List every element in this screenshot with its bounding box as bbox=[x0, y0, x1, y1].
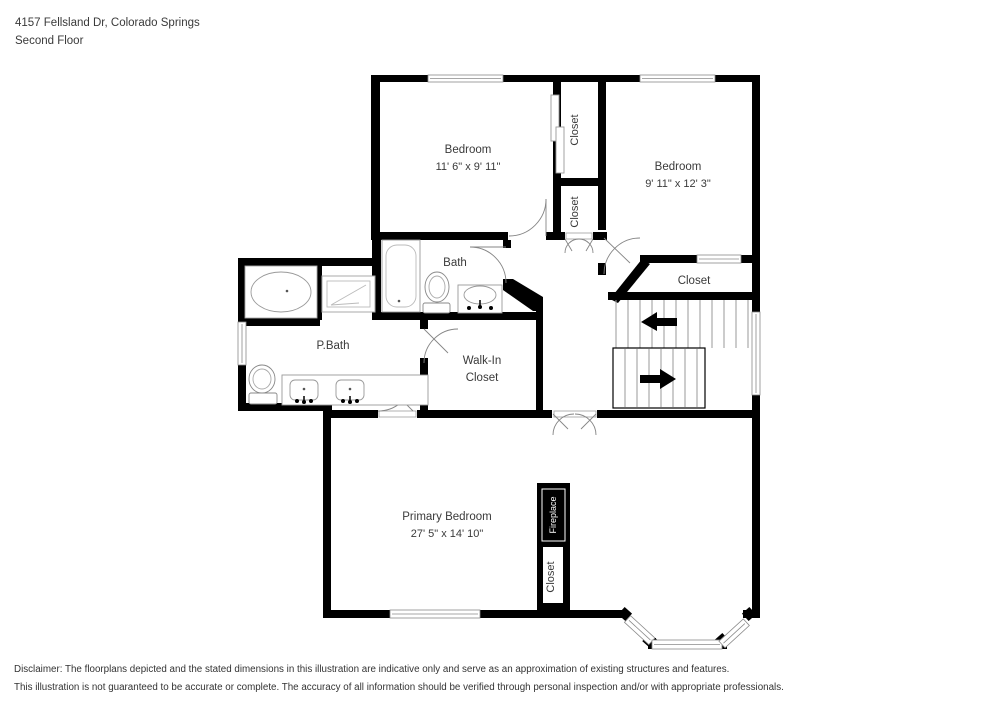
shower-icon bbox=[322, 276, 375, 312]
stair-arrow-up-icon bbox=[641, 312, 677, 331]
bedroom2-label: Bedroom bbox=[655, 161, 702, 173]
double-vanity-icon bbox=[282, 375, 428, 405]
primary-closet-label: Closet bbox=[545, 561, 557, 592]
bath-label: Bath bbox=[443, 257, 467, 269]
floor-label: Second Floor bbox=[15, 32, 200, 50]
bedroom2-dimensions: 9' 11" x 12' 3" bbox=[645, 178, 711, 190]
fireplace: Fireplace bbox=[537, 483, 570, 547]
door-sill bbox=[379, 411, 416, 417]
walk-in-closet-label-line1: Walk-In bbox=[463, 355, 502, 367]
bathtub-icon bbox=[382, 240, 420, 312]
sliding-closet-doors-icon bbox=[551, 95, 564, 173]
oval-tub-icon bbox=[245, 266, 317, 318]
window-hall-closet-icon bbox=[697, 255, 741, 263]
window-bedroom1-top-icon bbox=[428, 75, 503, 82]
bedroom1-dimensions: 11' 6" x 9' 11" bbox=[436, 161, 501, 173]
primary-bedroom-dimensions: 27' 5" x 14' 10" bbox=[411, 528, 484, 540]
address-text: 4157 Fellsland Dr, Colorado Springs bbox=[15, 14, 200, 32]
window-primary-bottom-icon bbox=[390, 610, 480, 618]
disclaimer-line1: Disclaimer: The floorplans depicted and … bbox=[14, 661, 784, 679]
window-stair-landing-icon bbox=[752, 312, 760, 395]
window-pbath-icon bbox=[238, 322, 246, 365]
door-bath-icon bbox=[470, 247, 506, 283]
toilet-pbath-icon bbox=[249, 365, 277, 404]
bay-window-icon bbox=[624, 616, 749, 649]
sink-bath-icon bbox=[458, 285, 502, 313]
door-walk-in-closet-icon bbox=[424, 329, 458, 363]
pbath-label: P.Bath bbox=[316, 340, 349, 352]
door-hall-closet-bifold-icon bbox=[565, 239, 593, 253]
door-sill bbox=[566, 233, 592, 239]
bedroom-closet-upper-label: Closet bbox=[569, 114, 581, 145]
primary-bedroom-label: Primary Bedroom bbox=[402, 511, 491, 523]
bedroom1-label: Bedroom bbox=[445, 144, 492, 156]
primary-closet: Closet bbox=[537, 547, 570, 612]
window-bedroom2-top-icon bbox=[640, 75, 715, 82]
bedroom-closet-lower-label: Closet bbox=[569, 196, 581, 227]
fireplace-label: Fireplace bbox=[548, 496, 558, 533]
plan-header: 4157 Fellsland Dr, Colorado Springs Seco… bbox=[15, 14, 200, 50]
disclaimer: Disclaimer: The floorplans depicted and … bbox=[14, 661, 784, 697]
staircase bbox=[613, 300, 748, 408]
hall-closet-label: Closet bbox=[678, 275, 711, 287]
toilet-bath-icon bbox=[423, 272, 450, 313]
floorplan-page: 4157 Fellsland Dr, Colorado Springs Seco… bbox=[0, 0, 1000, 707]
floorplan-drawing: Fireplace Closet Bedroom 11' 6" x 9' 11"… bbox=[0, 0, 1000, 707]
door-bedroom1-icon bbox=[509, 199, 546, 236]
disclaimer-line2: This illustration is not guaranteed to b… bbox=[14, 679, 784, 697]
walk-in-closet-label-line2: Closet bbox=[466, 372, 499, 384]
